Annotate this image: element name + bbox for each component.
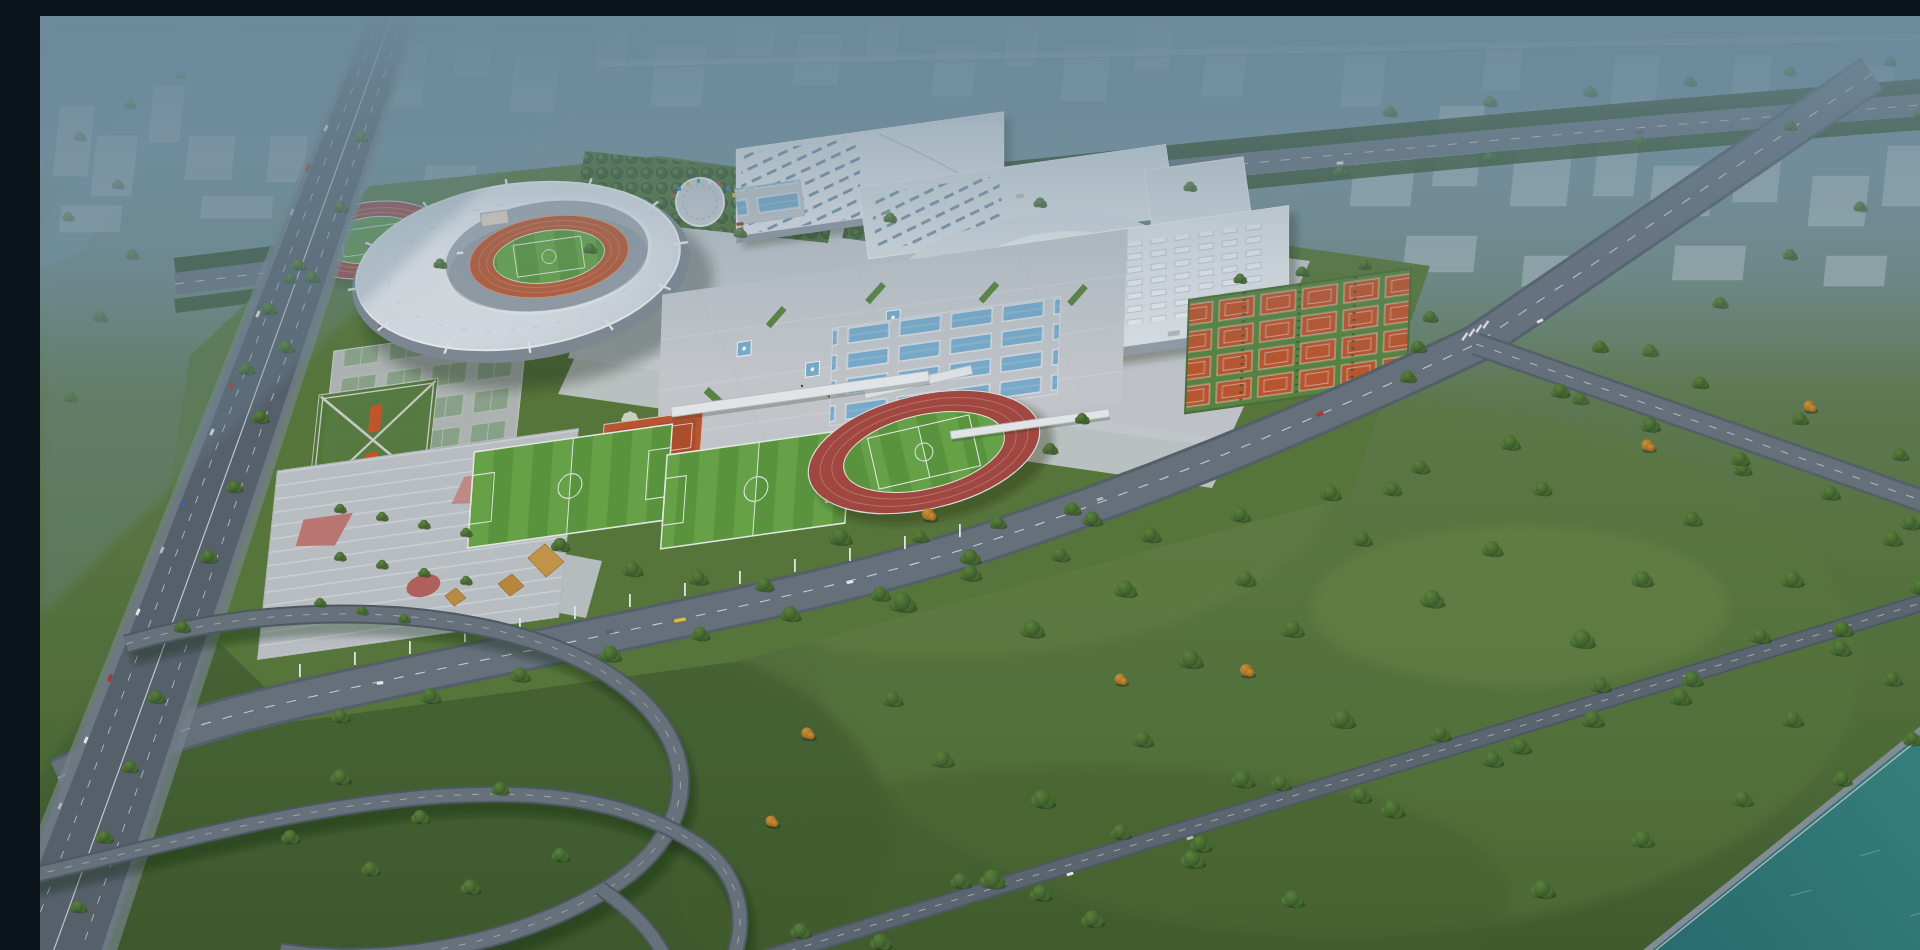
rendering-canvas xyxy=(40,16,1920,950)
tone-overlay xyxy=(40,16,1920,950)
aerial-site-rendering: Aerial rendering of a riverside sports c… xyxy=(40,16,1920,950)
